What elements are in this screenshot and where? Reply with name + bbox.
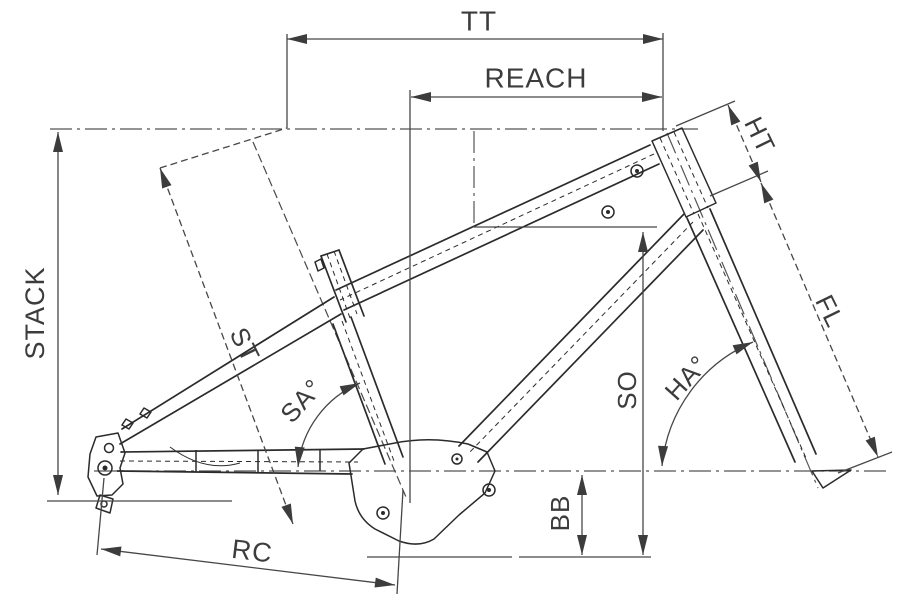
seat-axis-line [253,142,406,497]
dimension-stack: STACK [20,132,232,501]
frame-geometry-diagram: TT REACH STACK ST SA° RC [0,0,897,605]
fork-dropout [812,470,851,488]
dimension-ha: HA° [657,337,755,466]
dimension-label-ht: HT [738,112,781,158]
chain-stay [117,449,364,474]
geometry-drawing: TT REACH STACK ST SA° RC [0,0,897,605]
dimension-bb: BB [545,475,587,555]
dimension-st: ST [155,128,297,526]
dimension-label-so: SO [612,370,642,410]
dimension-label-ha: HA° [659,349,714,406]
motor-bracket [349,440,495,544]
dimension-tt: TT [287,5,663,131]
fork-axis-centerline [667,133,818,488]
seat-tube [315,250,403,464]
fork [687,209,851,488]
frame-outline [88,128,851,544]
dimension-label-bb: BB [545,495,575,532]
dimension-label-tt: TT [461,5,497,36]
gusset-bolts [602,165,643,218]
seat-stay [120,297,341,444]
dimension-fl: FL [756,181,892,473]
down-tube [459,214,703,462]
derailleur-hanger [96,495,113,513]
dimension-rc: RC [97,478,403,594]
dimension-label-stack: STACK [20,266,50,359]
reference-centerlines [50,129,889,497]
dimension-sa: SA° [274,373,362,468]
dimension-label-fl: FL [809,290,850,332]
dimension-label-reach: REACH [484,62,587,93]
dimension-label-sa: SA° [274,373,328,429]
dimension-label-rc: RC [230,534,274,569]
